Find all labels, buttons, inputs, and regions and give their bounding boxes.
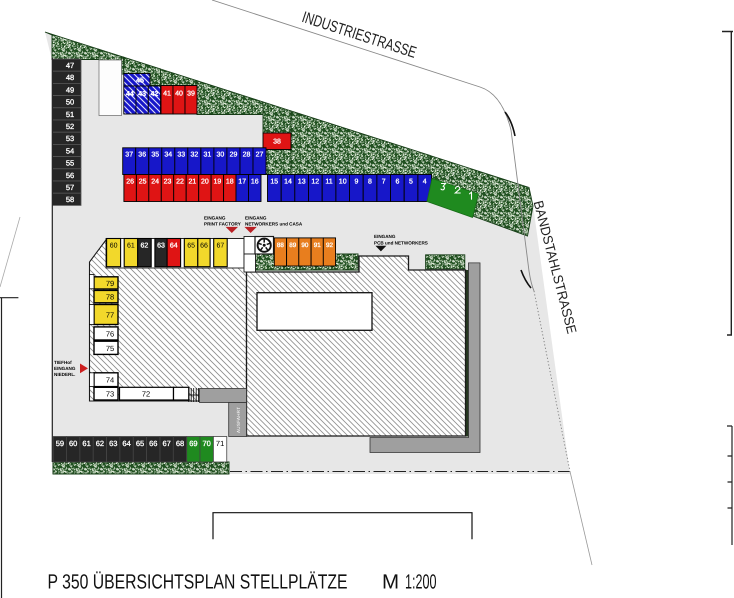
svg-text:45: 45 [136, 78, 144, 85]
svg-text:52: 52 [66, 122, 74, 131]
svg-text:9: 9 [354, 179, 358, 186]
svg-text:NIEDERL.: NIEDERL. [54, 372, 75, 377]
svg-text:64: 64 [170, 243, 178, 250]
svg-text:77: 77 [106, 311, 114, 320]
svg-text:34: 34 [164, 152, 172, 159]
svg-text:61: 61 [82, 439, 90, 448]
svg-text:67: 67 [217, 243, 225, 250]
svg-text:27: 27 [256, 152, 264, 159]
svg-text:67: 67 [163, 439, 171, 448]
svg-text:73: 73 [106, 390, 114, 399]
svg-text:31: 31 [204, 152, 212, 159]
svg-text:23: 23 [164, 179, 172, 186]
svg-text:TIEFHof: TIEFHof [54, 360, 72, 365]
svg-text:41: 41 [163, 91, 171, 98]
svg-text:21: 21 [189, 179, 197, 186]
svg-text:39: 39 [187, 91, 195, 98]
svg-text:EINGANG: EINGANG [245, 216, 267, 221]
svg-text:66: 66 [149, 439, 157, 448]
svg-text:71: 71 [216, 439, 224, 448]
svg-text:4: 4 [423, 179, 427, 186]
svg-text:92: 92 [326, 242, 334, 249]
svg-text:60: 60 [110, 243, 118, 250]
svg-text:18: 18 [226, 179, 234, 186]
svg-text:29: 29 [230, 152, 238, 159]
svg-text:30: 30 [217, 152, 225, 159]
svg-text:51: 51 [66, 110, 74, 119]
svg-text:EINGANG: EINGANG [204, 216, 226, 221]
svg-text:26: 26 [126, 179, 134, 186]
svg-text:47: 47 [66, 61, 74, 70]
svg-text:61: 61 [127, 243, 135, 250]
svg-text:79: 79 [106, 279, 114, 288]
svg-text:14: 14 [284, 179, 292, 186]
svg-text:69: 69 [189, 439, 197, 448]
svg-text:91: 91 [314, 242, 322, 249]
svg-text:65: 65 [136, 439, 144, 448]
svg-text:11: 11 [325, 179, 332, 186]
svg-text:12: 12 [311, 179, 319, 186]
svg-text:60: 60 [69, 439, 77, 448]
svg-text:5: 5 [409, 179, 413, 186]
svg-text:8: 8 [368, 179, 372, 186]
svg-text:74: 74 [106, 376, 114, 385]
svg-text:36: 36 [138, 152, 146, 159]
svg-text:1:200: 1:200 [405, 570, 437, 593]
svg-text:49: 49 [66, 85, 74, 94]
svg-text:48: 48 [66, 73, 74, 82]
svg-text:65: 65 [187, 243, 195, 250]
svg-text:10: 10 [339, 179, 347, 186]
svg-text:6: 6 [395, 179, 399, 186]
svg-text:89: 89 [289, 242, 297, 249]
svg-text:62: 62 [96, 439, 104, 448]
svg-text:16: 16 [251, 179, 259, 186]
svg-text:59: 59 [56, 439, 64, 448]
svg-text:25: 25 [139, 179, 147, 186]
svg-text:37: 37 [125, 152, 133, 159]
svg-text:64: 64 [122, 439, 130, 448]
svg-text:90: 90 [301, 242, 309, 249]
svg-text:24: 24 [151, 179, 159, 186]
svg-text:50: 50 [66, 98, 74, 107]
svg-text:17: 17 [238, 179, 246, 186]
svg-text:PRINT FACTORY: PRINT FACTORY [204, 222, 241, 227]
svg-text:28: 28 [243, 152, 251, 159]
svg-text:AUSFAHRT: AUSFAHRT [236, 407, 241, 433]
svg-text:63: 63 [157, 243, 165, 250]
svg-text:66: 66 [200, 243, 208, 250]
svg-text:38: 38 [273, 139, 281, 146]
svg-text:75: 75 [106, 344, 114, 353]
svg-text:7: 7 [382, 179, 386, 186]
svg-text:70: 70 [203, 439, 211, 448]
svg-text:57: 57 [66, 183, 74, 192]
svg-text:15: 15 [270, 179, 278, 186]
svg-text:54: 54 [66, 146, 74, 155]
svg-text:P 350 ÜBERSICHTSPLAN STELLPLÄT: P 350 ÜBERSICHTSPLAN STELLPLÄTZE [48, 570, 348, 593]
svg-text:22: 22 [176, 179, 184, 186]
svg-text:40: 40 [175, 91, 183, 98]
svg-text:20: 20 [201, 179, 209, 186]
svg-text:55: 55 [66, 159, 74, 168]
svg-text:EINGANG: EINGANG [54, 366, 76, 371]
svg-text:76: 76 [106, 329, 114, 338]
svg-text:68: 68 [176, 439, 184, 448]
svg-text:72: 72 [142, 390, 150, 399]
svg-text:42: 42 [151, 91, 159, 98]
svg-text:NETWORKERS und CASA: NETWORKERS und CASA [245, 222, 303, 227]
svg-text:53: 53 [66, 134, 74, 143]
svg-text:62: 62 [141, 243, 149, 250]
svg-text:44: 44 [126, 91, 134, 98]
svg-text:13: 13 [298, 179, 306, 186]
svg-text:35: 35 [151, 152, 159, 159]
svg-text:PCB und NETWORKERS: PCB und NETWORKERS [374, 241, 428, 246]
svg-text:43: 43 [138, 91, 146, 98]
svg-text:EINGANG: EINGANG [374, 234, 396, 239]
svg-text:M: M [382, 570, 399, 593]
svg-text:78: 78 [106, 293, 114, 302]
svg-text:63: 63 [109, 439, 117, 448]
svg-text:33: 33 [177, 152, 185, 159]
svg-text:88: 88 [277, 242, 285, 249]
svg-text:56: 56 [66, 171, 74, 180]
svg-text:32: 32 [191, 152, 199, 159]
svg-text:58: 58 [66, 195, 74, 204]
svg-text:19: 19 [214, 179, 222, 186]
